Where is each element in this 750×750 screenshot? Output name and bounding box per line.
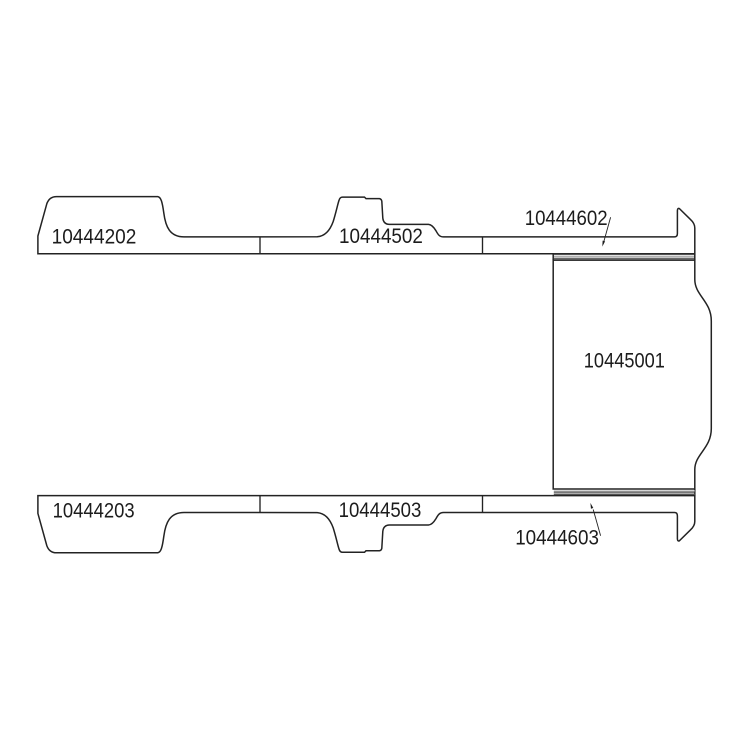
svg-text:10444602: 10444602 bbox=[525, 206, 608, 230]
svg-text:10444502: 10444502 bbox=[339, 224, 423, 248]
svg-text:10444503: 10444503 bbox=[339, 498, 422, 522]
svg-text:10444603: 10444603 bbox=[515, 526, 599, 550]
svg-text:10444203: 10444203 bbox=[53, 499, 135, 523]
svg-text:10444202: 10444202 bbox=[52, 224, 137, 248]
svg-text:10445001: 10445001 bbox=[584, 348, 665, 372]
